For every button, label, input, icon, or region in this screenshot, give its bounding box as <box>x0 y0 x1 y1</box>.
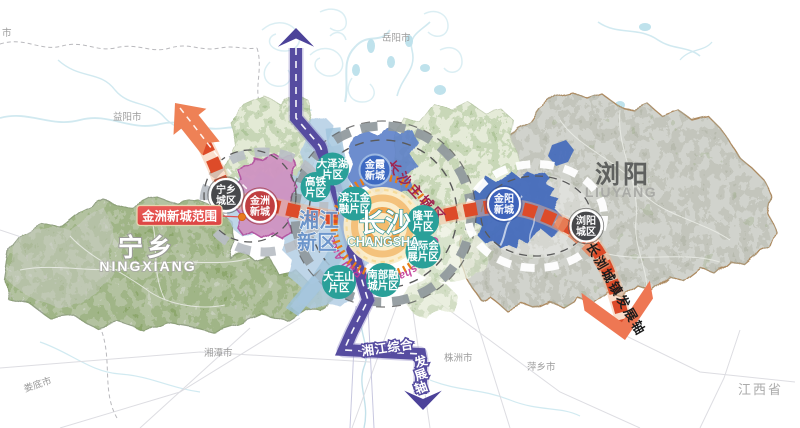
svg-text:金霞: 金霞 <box>364 158 386 171</box>
svg-text:片区: 片区 <box>305 186 326 199</box>
svg-text:新城: 新城 <box>494 203 514 216</box>
svg-text:城区: 城区 <box>576 225 596 238</box>
svg-text:新城: 新城 <box>365 169 385 182</box>
svg-text:新城: 新城 <box>250 205 270 218</box>
svg-text:湘江: 湘江 <box>299 208 339 232</box>
svg-text:岳阳市: 岳阳市 <box>382 32 411 44</box>
svg-text:金洲新城范围: 金洲新城范围 <box>141 209 217 224</box>
svg-text:LIUYANG: LIUYANG <box>585 184 657 200</box>
svg-text:浏阳: 浏阳 <box>576 214 596 227</box>
svg-text:江西省: 江西省 <box>738 382 783 397</box>
svg-text:益阳市: 益阳市 <box>113 111 142 123</box>
svg-text:萍乡市: 萍乡市 <box>527 361 556 373</box>
svg-text:片区: 片区 <box>413 220 434 233</box>
svg-text:城片区: 城片区 <box>367 279 399 292</box>
svg-text:片区: 片区 <box>329 281 350 294</box>
svg-text:长沙: 长沙 <box>359 208 411 238</box>
svg-text:宁乡: 宁乡 <box>216 183 236 196</box>
svg-text:CHANGSHA: CHANGSHA <box>347 235 419 249</box>
svg-text:展片区: 展片区 <box>407 250 439 263</box>
svg-text:株洲市: 株洲市 <box>444 352 473 364</box>
svg-text:金阳: 金阳 <box>493 192 514 205</box>
svg-text:NINGXIANG: NINGXIANG <box>99 258 196 274</box>
svg-text:市: 市 <box>2 27 12 39</box>
svg-text:新区: 新区 <box>297 230 337 254</box>
svg-text:湘潭市: 湘潭市 <box>204 347 233 359</box>
svg-text:金洲: 金洲 <box>249 194 270 207</box>
